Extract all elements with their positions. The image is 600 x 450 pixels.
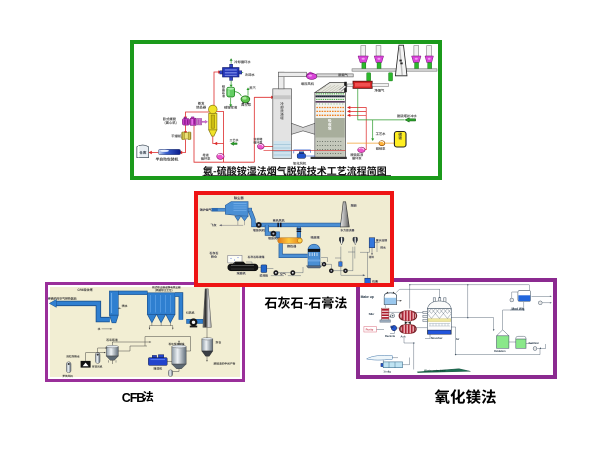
svg-text:Recircle: Recircle	[385, 334, 396, 338]
svg-text:Absorber: Absorber	[431, 336, 443, 340]
svg-text:Ash: Ash	[401, 335, 406, 339]
svg-text:Waste water treat: Waste water treat	[424, 369, 446, 373]
svg-text:Slkr: Slkr	[369, 312, 376, 316]
svg-text:Oxidation: Oxidation	[494, 350, 506, 353]
svg-text:Purity: Purity	[366, 328, 374, 332]
svg-text:Mod Wtr: Mod Wtr	[512, 307, 526, 311]
svg-text:Fertilizer: Fertilizer	[529, 342, 539, 345]
svg-text:Air: Air	[456, 337, 460, 341]
svg-text:Make up: Make up	[361, 295, 374, 299]
svg-text:1t stlg: 1t stlg	[383, 371, 391, 374]
